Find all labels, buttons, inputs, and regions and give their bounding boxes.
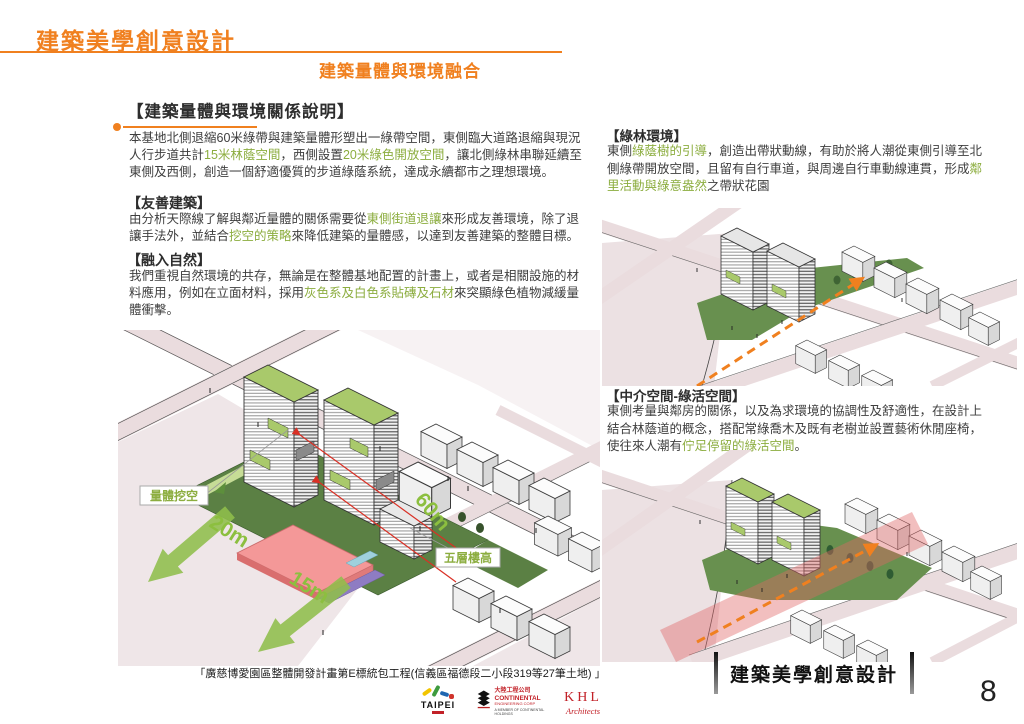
- body-text: 由分析天際線了解與鄰近量體的關係需要從: [129, 212, 367, 226]
- continental-text: 大陸工程公司 CONTINENTAL ENGINEERING CORP A ME…: [495, 688, 554, 717]
- khl-subtitle: Architects: [556, 706, 610, 716]
- label-volume-cutout: 量體挖空: [150, 488, 198, 503]
- nature-paragraph: 我們重視自然環境的共存，無論是在整體基地配置的計畫上，或者是相關設施的材料應用，…: [129, 268, 589, 319]
- friendly-paragraph: 由分析天際線了解與鄰近量體的關係需要從東側街道退讓來形成友善環境，除了退讓手法外…: [129, 211, 589, 245]
- slide-title-block: 建築美學創意設計: [714, 650, 914, 696]
- continental-diamond-icon: [476, 688, 492, 712]
- body-text: 之帶狀花園: [707, 179, 770, 193]
- page-number: 8: [980, 675, 997, 709]
- section-heading-green-env: 【綠林環境】: [606, 125, 687, 145]
- title-bar-right: [910, 652, 914, 694]
- intro-paragraph: 本基地北側退縮60米綠帶與建築量體形塑出一綠帶空間，東側臨大道路退縮與現況人行步…: [129, 130, 589, 181]
- green-env-illustration: [602, 208, 1017, 386]
- highlighted-text: 挖空的策略: [229, 229, 292, 243]
- section-heading-friendly: 【友善建築】: [127, 193, 211, 213]
- accent-line: [123, 126, 257, 128]
- highlighted-text: 東側街道退讓: [367, 212, 442, 226]
- green-env-paragraph: 東側綠蔭樹的引導，創造出帶狀動線，有助於將人潮從東側引導至北側綠帶開放空間，且留…: [607, 143, 991, 196]
- taipei-wordmark: TAIPEI: [416, 700, 460, 710]
- taipei-leaf-icon: [416, 688, 460, 700]
- section-heading-relation: 【建築量體與環境關係說明】: [127, 98, 355, 122]
- title-bar-left: [714, 652, 718, 694]
- page-subtitle: 建築量體與環境融合: [230, 57, 570, 82]
- continental-member: A MEMBER OF CONTINENTAL HOLDINGS: [495, 709, 554, 717]
- body-text: 東側: [607, 144, 632, 158]
- section-heading-nature: 【融入自然】: [127, 250, 211, 270]
- khl-wordmark: KHL: [556, 690, 610, 706]
- body-text: 來降低建築的量體感，以達到友善建築的整體目標。: [292, 229, 580, 243]
- highlighted-text: 綠蔭樹的引導: [632, 144, 707, 158]
- logo-khl: KHL Architects: [556, 690, 610, 716]
- label-five-floors: 五層樓高: [444, 550, 492, 565]
- section-heading-mid-space: 【中介空間-綠活空間】: [606, 385, 746, 405]
- logo-taipei: TAIPEI: [416, 688, 460, 714]
- tower-left: [244, 365, 318, 507]
- continental-cn: 大陸工程公司: [495, 688, 554, 695]
- main-site-illustration: 20m 15m 60m 量體挖空 五層樓高: [118, 330, 600, 666]
- title-rule: [0, 51, 562, 53]
- highlighted-text: 15米林蔭空間: [204, 148, 280, 162]
- slide: 建築美學創意設計 建築量體與環境融合 【建築量體與環境關係說明】 本基地北側退縮…: [0, 0, 1024, 724]
- slide-title-footer: 建築美學創意設計: [730, 660, 898, 687]
- taipei-red-mark: [432, 711, 444, 714]
- tower-right: [324, 388, 398, 525]
- logo-continental: 大陸工程公司 CONTINENTAL ENGINEERING CORP A ME…: [476, 688, 554, 717]
- accent-dot: [113, 123, 121, 131]
- mid-space-illustration: [602, 450, 1017, 662]
- footer-project-title: 「廣慈博愛園區整體開發計畫第E標統包工程(信義區福德段二小段319等27筆土地)…: [150, 665, 650, 681]
- mid-space-paragraph: 東側考量與鄰房的關係，以及為求環境的協調性及舒適性，在設計上結合林蔭道的概念，搭…: [607, 403, 991, 456]
- body-text: ，西側設置: [280, 148, 343, 162]
- highlighted-text: 20米綠色開放空間: [343, 148, 444, 162]
- continental-sub: ENGINEERING CORP: [495, 702, 554, 706]
- highlighted-text: 灰色系及白色系貼磚及石材: [304, 286, 454, 300]
